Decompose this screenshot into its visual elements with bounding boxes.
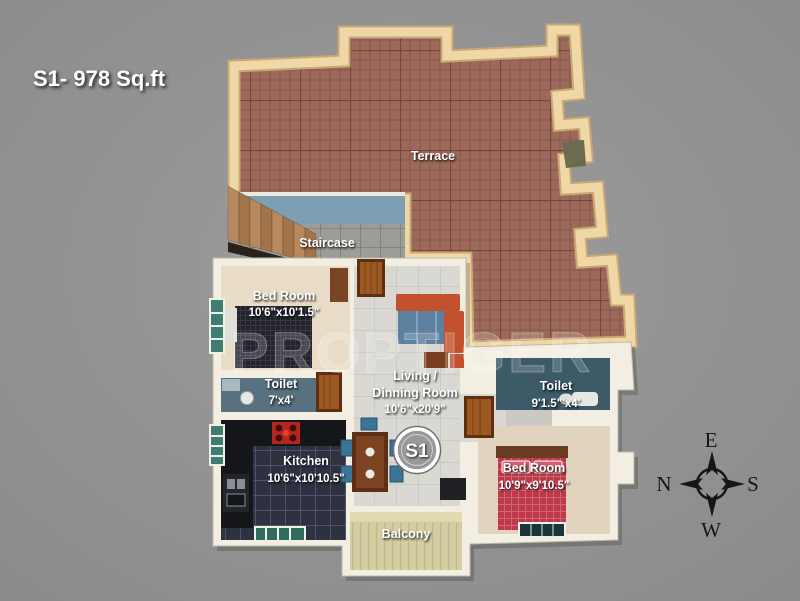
label-kitchen-dims: 10'6"x10'10.5" xyxy=(267,473,344,485)
label-living-dims: 10'6"x20'9" xyxy=(384,404,445,416)
page-title: S1- 978 Sq.ft xyxy=(33,66,166,91)
headboard xyxy=(496,446,568,458)
label-living-1: Living / xyxy=(393,369,437,383)
label-toilet1: Toilet xyxy=(265,377,298,391)
compass-letter-left: N xyxy=(656,472,671,496)
wc-icon xyxy=(241,392,254,405)
label-terrace: Terrace xyxy=(411,149,455,163)
badge-text: S1 xyxy=(405,441,429,462)
window-icon xyxy=(518,522,566,538)
staircase-wall-cap xyxy=(230,192,405,196)
bedroom1-wardrobe xyxy=(330,268,348,302)
label-toilet2: Toilet xyxy=(540,379,573,393)
balcony-step xyxy=(350,512,462,522)
label-staircase: Staircase xyxy=(299,236,355,250)
door-icon xyxy=(357,259,385,297)
label-bedroom2: Bed Room xyxy=(503,461,566,475)
label-bedroom2-dims: 10'9"x9'10.5" xyxy=(499,480,570,492)
unit-badge: S1 xyxy=(394,427,441,474)
floorplan-canvas: PROPTIGER Terrace Staircase Bed Room 10'… xyxy=(0,0,800,601)
window-icon xyxy=(254,526,306,542)
label-bedroom1-dims: 10'6"x10'1.5" xyxy=(249,307,320,319)
compass-letter-bottom: W xyxy=(701,518,721,542)
label-toilet1-dims: 7'x4' xyxy=(269,395,294,407)
bedroom2-furniture xyxy=(496,446,568,538)
compass-letter-top: E xyxy=(705,428,718,452)
sofa-back xyxy=(396,294,460,311)
window-icon xyxy=(209,424,225,466)
oven-icon xyxy=(223,474,249,512)
window-icon xyxy=(209,298,225,354)
compass-letter-right: S xyxy=(747,472,759,496)
terrace-notch-shade xyxy=(562,140,586,168)
floor-mat xyxy=(440,478,466,500)
label-living-2: Dinning Room xyxy=(372,386,457,400)
label-bedroom1: Bed Room xyxy=(253,289,316,303)
stove-icon xyxy=(272,422,300,444)
label-kitchen: Kitchen xyxy=(283,454,329,468)
label-toilet2-dims: 9'1.5"'x4' xyxy=(532,398,581,410)
label-balcony: Balcony xyxy=(382,527,431,541)
door-icon xyxy=(464,396,494,438)
